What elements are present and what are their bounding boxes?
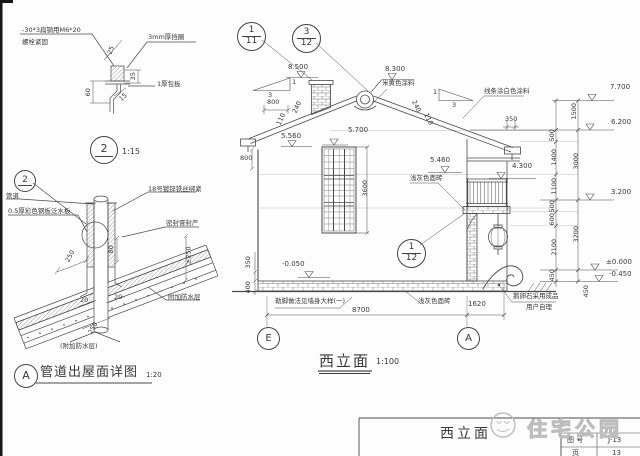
dim-r-500b: 500: [549, 200, 556, 212]
grid-bubble-a: A: [457, 327, 480, 350]
ref-circle-1-12: 1 12: [397, 239, 426, 268]
note-cobble-1: 鹅卵石采用成品: [513, 293, 559, 300]
note-added-wp: 附加防水层: [168, 294, 201, 301]
note-cobble-2: 用户自理: [526, 304, 552, 311]
detailA-title-bubble: A: [14, 364, 38, 388]
note-flashing: 0.5厚彩色钢板泛水板: [8, 208, 70, 215]
note-paint-beige: 米黄色涂料: [382, 80, 415, 87]
dim-r-450b: 450: [583, 285, 590, 297]
level-4300: 4.300: [512, 163, 532, 170]
dim-wall-800: 800: [240, 155, 252, 162]
dim-span-8700: 8700: [352, 307, 370, 314]
level-5460: 5.460: [430, 157, 450, 164]
level-6200: 6.200: [611, 119, 631, 126]
dim-r-2100: 2100: [551, 239, 558, 256]
elevation-scale: 1:100: [376, 358, 399, 366]
dim-r-1400: 1400: [551, 149, 558, 166]
level-5700: 5.700: [348, 127, 368, 134]
titleblock-row2-label: 页: [572, 450, 579, 456]
dim-80: 80: [108, 245, 115, 253]
slope-left-rise: 1: [292, 79, 296, 86]
level-7700: 7.700: [610, 84, 630, 91]
level-0000: ±0.000: [606, 259, 632, 266]
dim-win-3600: 3600: [362, 180, 369, 197]
slope-right-rise: 1: [433, 89, 437, 96]
detailA-scale: 1:20: [146, 372, 162, 379]
dim-base-350: 350: [245, 256, 252, 268]
note-wire: 18号镀锌铁丝绑紧: [148, 186, 202, 193]
slope-right-run: 3: [452, 102, 456, 109]
drawing-sheet: { "detail2": { "note_bolt_line1": "-30*3…: [0, 0, 640, 456]
note-added-wp-paren: (附加防水层): [60, 343, 98, 350]
dim-r-3200: 3200: [573, 226, 580, 243]
level-m0050: -0.050: [282, 261, 305, 268]
level-m0450: -0.450: [609, 271, 632, 278]
sheet-edge: [0, 0, 13, 456]
note-trim-white: 线条涂白色涂料: [484, 88, 530, 95]
note-plinth: 勒脚做法见墙身大样(一): [275, 298, 345, 305]
note-pipe: 管道: [6, 193, 19, 200]
note-washer: 3mm厚挡圈: [148, 34, 184, 41]
detail2-scale: 1:15: [122, 148, 140, 156]
titleblock-row2-value: 13: [612, 450, 621, 456]
detail2-ref-circle: 2: [90, 136, 118, 164]
level-3200: 3.200: [611, 189, 631, 196]
dim-r-3000: 3000: [573, 153, 580, 170]
note-tile-lower: 浅灰色面砖: [418, 298, 451, 305]
note-tile-upper: 浅灰色面砖: [410, 175, 443, 182]
elevation-title: 西立面: [319, 350, 370, 374]
dim-20-left: 20: [80, 297, 88, 304]
dim-r-1500: 1500: [571, 103, 578, 120]
elevation-art: [232, 40, 618, 371]
cad-line-art: [0, 0, 640, 456]
note-sealant: 密封膏封严: [166, 220, 199, 227]
dim-35: 35: [130, 72, 137, 80]
watermark-text: 住宅公园: [527, 413, 623, 442]
dim-r-500a: 500: [549, 129, 556, 141]
dim-ge250: ≥250: [186, 246, 193, 264]
ref-circle-1-11: 1 11: [237, 22, 266, 51]
dim-roof-800: 800: [267, 99, 279, 106]
level-8500: 8.500: [288, 64, 308, 71]
dim-base-400: 400: [245, 281, 252, 293]
note-bolt-line2: 螺栓紧固: [22, 39, 48, 46]
note-plate: 1厚包板: [157, 81, 181, 88]
level-5560: 5.560: [281, 133, 301, 140]
dim-r-600: 600: [549, 213, 556, 225]
ref-circle-3-12: 3 12: [292, 24, 321, 53]
level-8300: 8.300: [385, 66, 405, 73]
titleblock-drawing-name: 西立面: [440, 427, 491, 441]
detailA-title: 管道出屋面详图: [40, 366, 138, 379]
dim-span-1620: 1620: [468, 301, 486, 308]
dim-r-1100: 1100: [551, 178, 558, 195]
dim-eave-350: 350: [505, 116, 517, 123]
detailA-ref-circle: 2: [14, 170, 36, 192]
grid-bubble-e: E: [257, 327, 280, 350]
dim-20-right: 20: [114, 294, 122, 301]
watermark-logo-icon: [491, 413, 515, 437]
note-bolt-line1: -30*3扁钢用M6*20: [22, 27, 81, 34]
dim-r-450a: 450: [549, 269, 556, 281]
dim-60: 60: [85, 88, 92, 96]
